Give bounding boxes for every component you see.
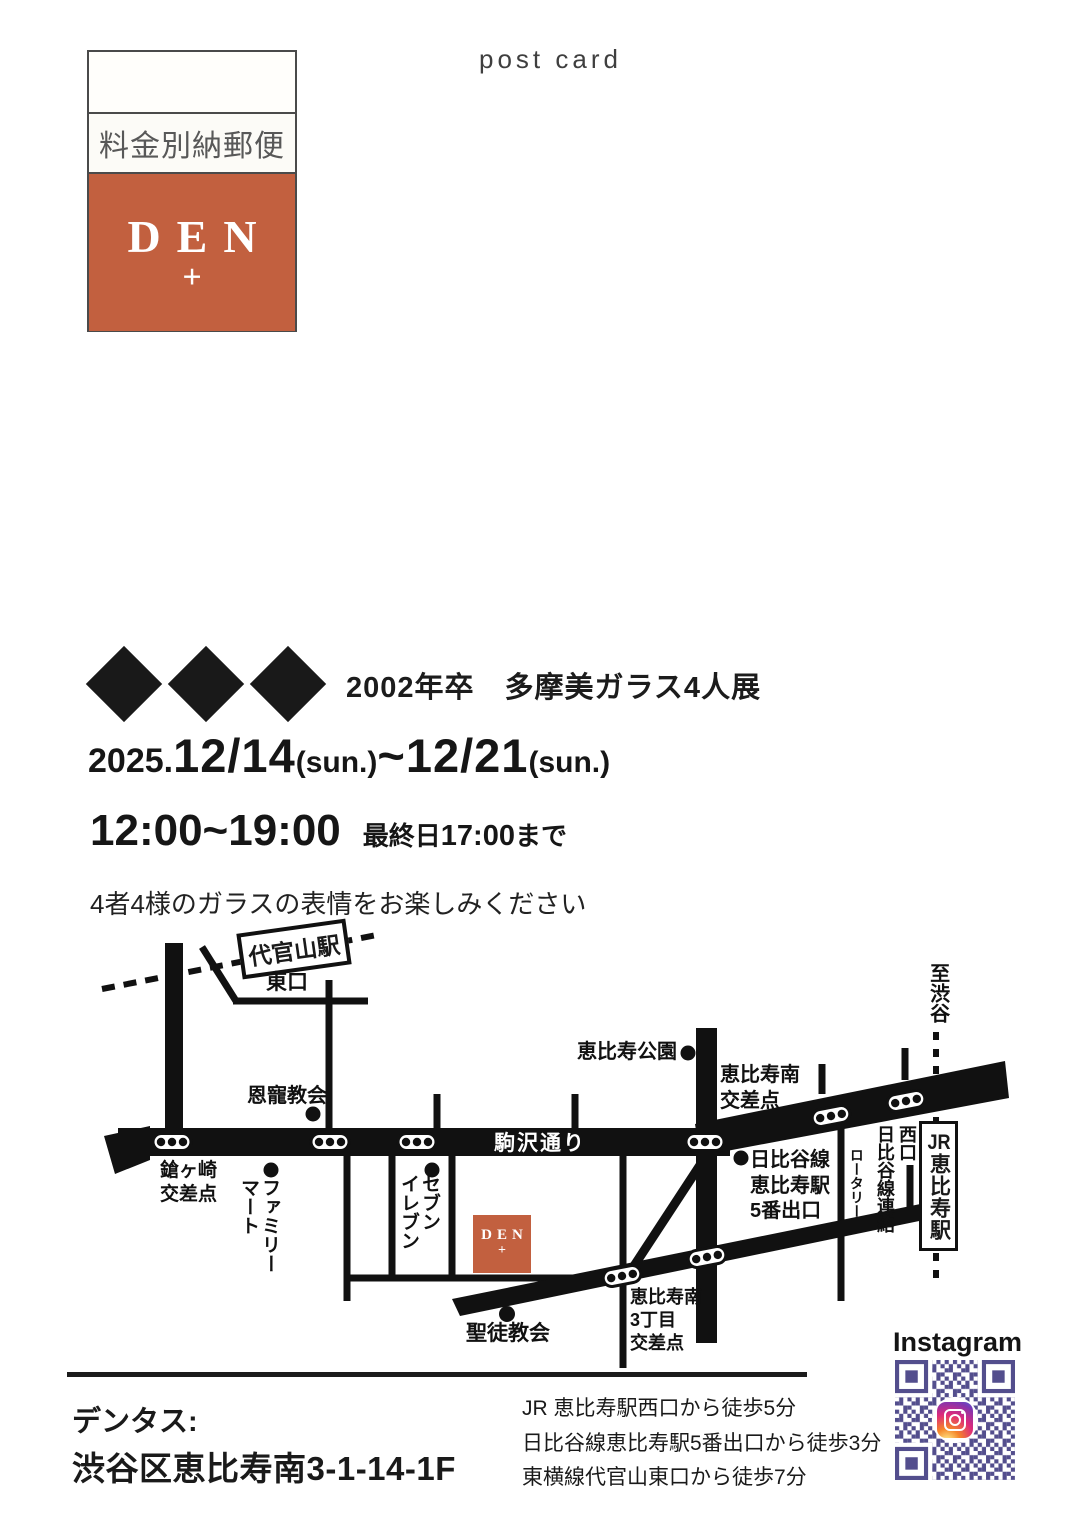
access-line-jr: JR 恵比寿駅西口から徒歩5分 — [522, 1392, 881, 1427]
seven-eleven-label: セブン イレブン — [398, 1174, 440, 1250]
traffic-signal-icon — [398, 1134, 436, 1151]
traffic-signal-icon — [311, 1134, 349, 1151]
sanchome-crossing-label: 恵比寿南 3丁目 交差点 — [630, 1286, 702, 1355]
den-marker-plus: + — [473, 1244, 531, 1258]
footer-divider — [67, 1372, 807, 1377]
rotary-label: ロータリー — [847, 1148, 865, 1218]
traffic-signal-icon — [153, 1134, 191, 1151]
onchou-church-label: 恩寵教会 — [247, 1084, 327, 1110]
access-line-toyoko: 東横線代官山東口から徒歩7分 — [522, 1461, 881, 1496]
ebisu-park-label: 恵比寿公園 — [577, 1040, 677, 1066]
family-mart-label: ファミリー マート — [238, 1178, 280, 1273]
daikanyama-station-label: 代官山駅 — [246, 926, 342, 972]
postcard: post card 料金別納郵便 DEN + 2002年卒 多摩美ガラス4人展 … — [0, 0, 1091, 1527]
yarigasaki-crossing-label: 鎗ヶ崎 交差点 — [160, 1159, 217, 1208]
east-exit-label: 東口 — [266, 970, 308, 997]
camera-lens — [949, 1414, 961, 1426]
camera-flash-dot — [961, 1411, 964, 1414]
to-shibuya-label: 至渋谷 — [924, 963, 950, 1023]
jr-prefix: JR — [928, 1132, 951, 1153]
traffic-signal-icon — [687, 1245, 728, 1269]
access-directions: JR 恵比寿駅西口から徒歩5分 日比谷線恵比寿駅5番出口から徒歩3分 東横線代官… — [522, 1392, 881, 1496]
ebisu-minami-crossing-label: 恵比寿南 交差点 — [720, 1063, 800, 1114]
den-location-marker: DEN + — [473, 1215, 531, 1273]
instagram-label: Instagram — [893, 1327, 1022, 1358]
access-map — [0, 0, 1091, 1527]
road-kyu-yamate — [165, 943, 183, 1156]
jr-station-name: 恵比寿駅 — [928, 1153, 951, 1241]
jr-ebisu-station-label: JR恵比寿駅 — [924, 1132, 954, 1241]
hibiya-exit-label: 日比谷線 恵比寿駅 5番出口 — [750, 1148, 830, 1225]
komazawa-street-label: 駒沢通り — [494, 1131, 586, 1158]
shop-address: 渋谷区恵比寿南3-1-14-1F — [72, 1442, 456, 1490]
access-line-hibiya: 日比谷線恵比寿駅5番出口から徒歩3分 — [522, 1427, 881, 1462]
jr-ebisu-station-box: JR恵比寿駅 — [919, 1121, 958, 1251]
seito-church-dot — [499, 1306, 515, 1322]
traffic-signal-icon — [686, 1134, 724, 1151]
family-mart-dot — [264, 1163, 279, 1178]
west-exit-label: 西口 日比谷線連絡 — [874, 1125, 918, 1233]
seito-church-label: 聖徒教会 — [466, 1321, 550, 1348]
ebisu-park-dot — [681, 1046, 696, 1061]
den-marker-name: DEN — [473, 1215, 531, 1244]
shop-name: デンタス: — [72, 1398, 198, 1440]
instagram-icon — [937, 1402, 973, 1438]
hibiya-exit-dot — [734, 1151, 749, 1166]
